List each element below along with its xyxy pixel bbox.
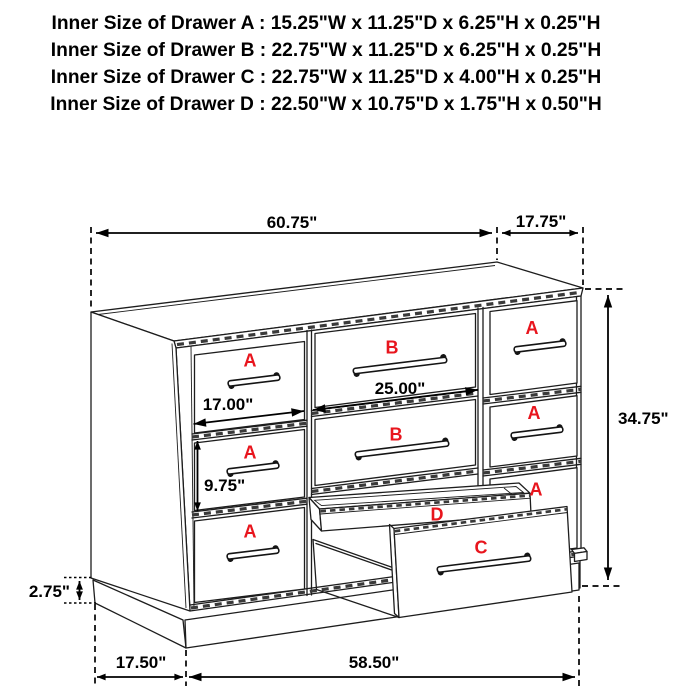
dim-base-depth: 17.50" xyxy=(116,653,167,672)
dresser-dimension-diagram: Inner Size of Drawer A : 15.25"W x 11.25… xyxy=(0,0,700,700)
dim-left-drawer-width: 17.00" xyxy=(203,395,254,414)
dim-overall-height: 34.75" xyxy=(618,409,669,428)
dim-plinth-height: 2.75" xyxy=(29,582,70,601)
label-drawer-a-left-middle: A xyxy=(244,443,257,463)
label-drawer-b-top: B xyxy=(386,338,399,358)
title-line-drawer-a: Inner Size of Drawer A : 15.25"W x 11.25… xyxy=(51,13,600,34)
label-drawer-b-bottom: B xyxy=(390,425,403,445)
label-drawer-d: D xyxy=(431,505,444,525)
label-drawer-c: C xyxy=(475,538,488,558)
title-block: Inner Size of Drawer A : 15.25"W x 11.25… xyxy=(50,13,602,115)
dim-top-depth: 17.75" xyxy=(516,212,567,231)
title-line-drawer-b: Inner Size of Drawer B : 22.75"W x 11.25… xyxy=(51,40,601,61)
title-line-drawer-d: Inner Size of Drawer D : 22.50"W x 10.75… xyxy=(50,94,602,115)
diagram-canvas: Inner Size of Drawer A : 15.25"W x 11.25… xyxy=(0,0,700,700)
label-drawer-a-left-bottom: A xyxy=(244,522,257,542)
title-line-drawer-c: Inner Size of Drawer C : 22.75"W x 11.25… xyxy=(51,67,601,88)
dim-drawer-height: 9.75" xyxy=(204,476,245,495)
label-drawer-a-right-top: A xyxy=(526,318,539,338)
dim-base-width: 58.50" xyxy=(349,653,400,672)
label-drawer-a-left-top: A xyxy=(244,351,257,371)
label-drawer-a-right-bottom: A xyxy=(530,480,543,500)
dim-middle-drawer-width: 25.00" xyxy=(375,379,426,398)
dim-top-width: 60.75" xyxy=(267,213,318,232)
label-drawer-a-right-middle: A xyxy=(528,403,541,423)
